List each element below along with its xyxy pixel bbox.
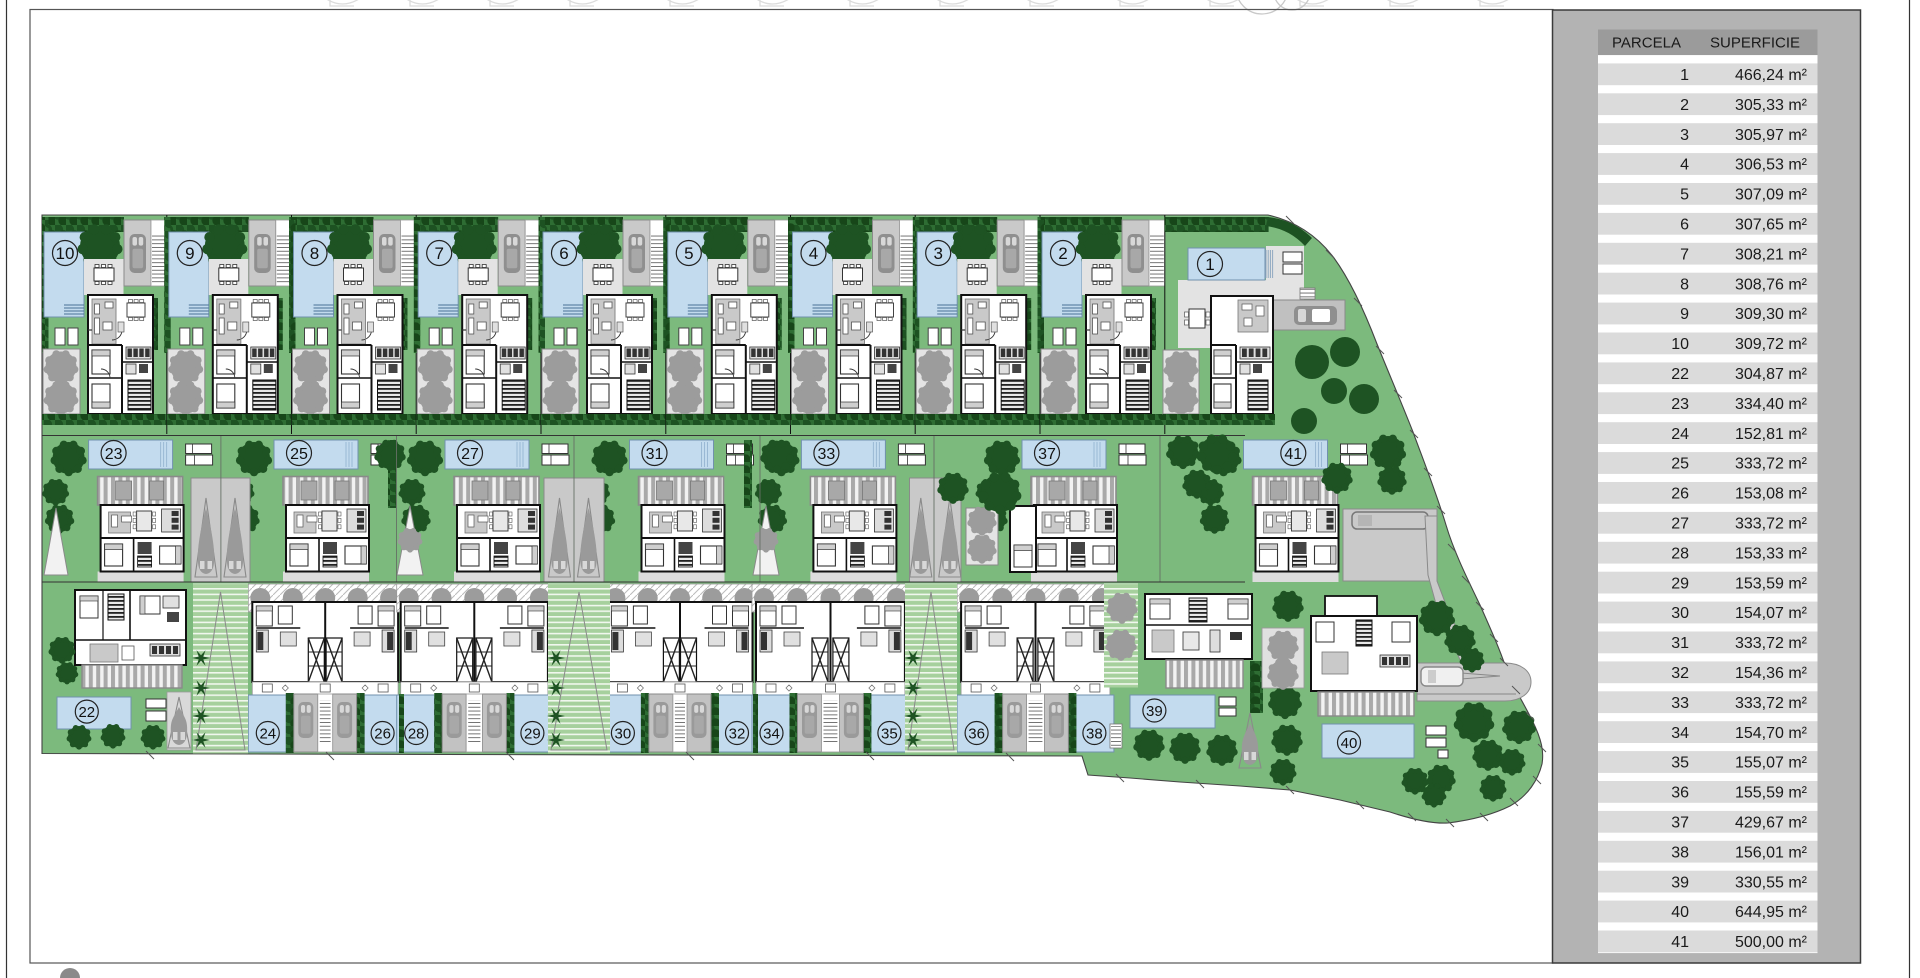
svg-text:35: 35 (881, 725, 898, 742)
svg-text:29: 29 (524, 725, 541, 742)
svg-text:38: 38 (1086, 725, 1103, 742)
svg-text:2: 2 (1058, 244, 1067, 263)
svg-text:37: 37 (1671, 815, 1689, 832)
svg-text:500,00 m²: 500,00 m² (1735, 934, 1808, 951)
svg-text:36: 36 (1671, 785, 1689, 802)
svg-text:644,95 m²: 644,95 m² (1735, 904, 1808, 921)
svg-text:39: 39 (1671, 874, 1689, 891)
svg-text:32: 32 (1671, 665, 1689, 682)
svg-text:40: 40 (1341, 735, 1358, 752)
svg-text:152,81 m²: 152,81 m² (1735, 426, 1808, 443)
svg-text:309,72 m²: 309,72 m² (1735, 336, 1808, 353)
svg-text:156,01 m²: 156,01 m² (1735, 844, 1808, 861)
svg-text:429,67 m²: 429,67 m² (1735, 815, 1808, 832)
svg-text:334,40 m²: 334,40 m² (1735, 396, 1808, 413)
svg-text:41: 41 (1284, 446, 1302, 463)
svg-text:333,72 m²: 333,72 m² (1735, 695, 1808, 712)
svg-text:2: 2 (1680, 97, 1689, 114)
svg-text:25: 25 (1671, 456, 1689, 473)
svg-text:309,30 m²: 309,30 m² (1735, 306, 1808, 323)
svg-text:7: 7 (434, 244, 443, 263)
svg-text:26: 26 (1671, 486, 1689, 503)
svg-text:9: 9 (1680, 306, 1689, 323)
svg-text:155,07 m²: 155,07 m² (1735, 755, 1808, 772)
svg-text:34: 34 (763, 725, 780, 742)
svg-text:PARCELA: PARCELA (1612, 35, 1681, 52)
svg-text:307,09 m²: 307,09 m² (1735, 187, 1808, 204)
svg-text:3: 3 (933, 244, 942, 263)
svg-text:9: 9 (185, 244, 194, 263)
svg-text:33: 33 (1671, 695, 1689, 712)
svg-text:10: 10 (1671, 336, 1689, 353)
svg-text:8: 8 (310, 244, 319, 263)
svg-text:37: 37 (1038, 446, 1056, 463)
svg-text:6: 6 (1680, 217, 1689, 234)
svg-text:1: 1 (1205, 255, 1214, 274)
svg-text:SUPERFICIE: SUPERFICIE (1710, 35, 1800, 52)
svg-text:23: 23 (1671, 396, 1689, 413)
svg-text:330,55 m²: 330,55 m² (1735, 874, 1808, 891)
svg-text:154,36 m²: 154,36 m² (1735, 665, 1808, 682)
svg-text:36: 36 (968, 725, 985, 742)
svg-text:153,33 m²: 153,33 m² (1735, 545, 1808, 562)
svg-text:28: 28 (1671, 545, 1689, 562)
svg-text:308,21 m²: 308,21 m² (1735, 246, 1808, 263)
svg-text:307,65 m²: 307,65 m² (1735, 217, 1808, 234)
svg-text:28: 28 (408, 725, 425, 742)
svg-text:154,70 m²: 154,70 m² (1735, 725, 1808, 742)
svg-text:153,59 m²: 153,59 m² (1735, 575, 1808, 592)
svg-text:26: 26 (374, 725, 391, 742)
svg-text:308,76 m²: 308,76 m² (1735, 276, 1808, 293)
svg-text:23: 23 (105, 446, 123, 463)
svg-text:304,87 m²: 304,87 m² (1735, 366, 1808, 383)
svg-text:22: 22 (1671, 366, 1689, 383)
svg-text:40: 40 (1671, 904, 1689, 921)
svg-text:7: 7 (1680, 246, 1689, 263)
svg-text:31: 31 (646, 446, 664, 463)
svg-text:41: 41 (1671, 934, 1689, 951)
svg-text:39: 39 (1146, 703, 1163, 720)
svg-text:333,72 m²: 333,72 m² (1735, 516, 1808, 533)
svg-text:4: 4 (809, 244, 818, 263)
svg-text:30: 30 (615, 725, 632, 742)
svg-text:10: 10 (56, 244, 75, 263)
svg-text:155,59 m²: 155,59 m² (1735, 785, 1808, 802)
svg-text:33: 33 (818, 446, 836, 463)
svg-text:333,72 m²: 333,72 m² (1735, 456, 1808, 473)
svg-text:31: 31 (1671, 635, 1689, 652)
svg-text:333,72 m²: 333,72 m² (1735, 635, 1808, 652)
svg-text:27: 27 (461, 446, 479, 463)
svg-text:305,33 m²: 305,33 m² (1735, 97, 1808, 114)
svg-text:4: 4 (1680, 157, 1689, 174)
svg-text:8: 8 (1680, 276, 1689, 293)
svg-text:6: 6 (559, 244, 568, 263)
svg-text:466,24 m²: 466,24 m² (1735, 67, 1808, 84)
svg-text:5: 5 (1680, 187, 1689, 204)
svg-text:306,53 m²: 306,53 m² (1735, 157, 1808, 174)
svg-text:153,08 m²: 153,08 m² (1735, 486, 1808, 503)
svg-text:35: 35 (1671, 755, 1689, 772)
svg-text:305,97 m²: 305,97 m² (1735, 127, 1808, 144)
svg-text:5: 5 (684, 244, 693, 263)
svg-text:34: 34 (1671, 725, 1689, 742)
svg-text:1: 1 (1680, 67, 1689, 84)
svg-text:29: 29 (1671, 575, 1689, 592)
svg-text:30: 30 (1671, 605, 1689, 622)
svg-text:32: 32 (729, 725, 746, 742)
svg-text:24: 24 (259, 725, 276, 742)
svg-text:38: 38 (1671, 844, 1689, 861)
svg-text:24: 24 (1671, 426, 1689, 443)
svg-text:27: 27 (1671, 516, 1689, 533)
svg-text:25: 25 (290, 446, 308, 463)
svg-text:154,07 m²: 154,07 m² (1735, 605, 1808, 622)
svg-text:3: 3 (1680, 127, 1689, 144)
svg-text:22: 22 (78, 704, 95, 721)
